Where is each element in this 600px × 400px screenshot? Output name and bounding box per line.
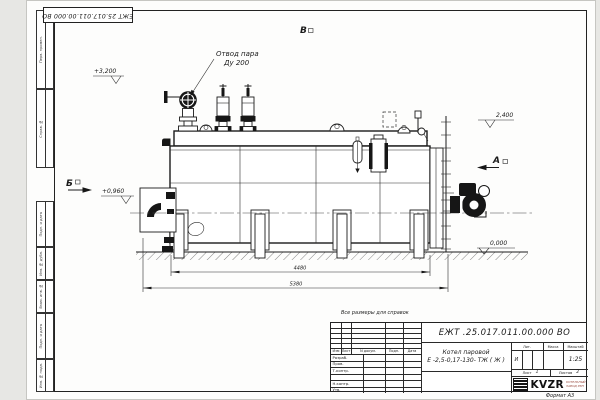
kvzr-logo-subtext: КОТЕЛЬНЫЙ ЗАВОД РЭП — [566, 381, 586, 388]
side-strip-label: Взам. инв. № — [37, 281, 46, 312]
scale-header: Масштаб — [563, 343, 588, 350]
side-strip-cell: Справ. № — [36, 89, 54, 168]
side-strip-cell: Взам. инв. № — [36, 280, 54, 313]
scale-value: 1:25 — [563, 350, 588, 369]
side-strip-label: Подп. и дата — [37, 314, 46, 358]
sheet-cell: Лист1 — [511, 369, 550, 376]
side-strip-cell: Подп. и дата — [36, 201, 54, 247]
product-name-line1: Котел паровой — [442, 349, 489, 357]
mass-header: Масса — [543, 343, 563, 350]
row-utv: Утв. — [331, 387, 363, 394]
product-name: Котел паровой Е -2,5-0,17-130- ТЖ ( Ж ) — [421, 343, 511, 371]
kvzr-logo-text: KVZR — [530, 379, 564, 391]
lit-header: Лит. — [511, 343, 543, 350]
col-header-data: Дата — [403, 348, 421, 354]
lit-value: И — [511, 350, 522, 369]
side-strip-label: Подп. и дата — [37, 202, 46, 246]
product-name-line2: Е -2,5-0,17-130- ТЖ ( Ж ) — [427, 357, 505, 365]
side-strip-cell: Инв. № подл. — [36, 359, 54, 392]
row-tkontr: Т.контр. — [331, 367, 363, 374]
title-block: ЕЖТ .25.017.011.00.000 ВО Изм Лист N док… — [330, 322, 587, 392]
kvzr-logo-icon — [513, 378, 528, 392]
col-header-podp: Подп. — [385, 348, 403, 354]
side-strip-label: Справ. № — [37, 90, 46, 167]
side-strip-label: Инв. № дубл. — [37, 248, 46, 279]
doc-number-cell: ЕЖТ .25.017.011.00.000 ВО — [421, 323, 588, 343]
drawing-sheet: Перв. примен. Справ. № Подп. и дата Инв.… — [0, 0, 600, 400]
side-strip-cell: Инв. № дубл. — [36, 247, 54, 280]
side-strip-cell: Подп. и дата — [36, 313, 54, 359]
side-strip-label: Инв. № подл. — [37, 360, 46, 391]
format-note: Формат А3 — [530, 393, 590, 399]
rotated-doc-number-stamp: ЕЖТ 25.017.011.00.000 ВО — [43, 7, 133, 23]
sheets-cell: Листов2 — [550, 369, 588, 376]
company-logo: KVZR КОТЕЛЬНЫЙ ЗАВОД РЭП — [511, 376, 588, 393]
